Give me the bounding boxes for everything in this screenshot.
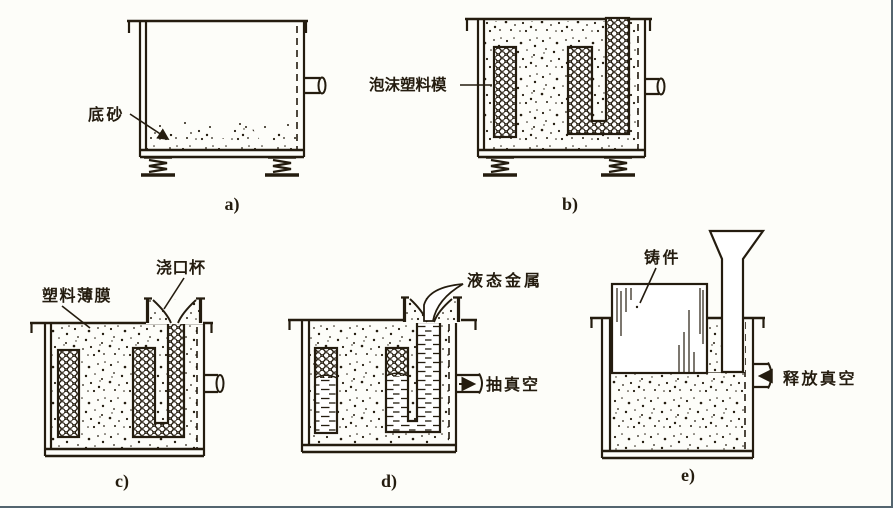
vibration-springs [483,158,635,176]
panel-a: 底砂 a) [88,21,326,215]
flask-rim-ticks [129,21,306,33]
flask-left-wall [602,318,610,458]
flask-left-wall [140,21,146,157]
sand-specks [159,122,289,128]
caption-a: a) [225,194,240,215]
foam-bar [494,47,516,137]
figure-canvas: 底砂 a) [0,0,893,508]
panel-d: 液态金属 抽真空 d) [288,271,543,492]
vacuum-pipe [204,375,224,392]
foam-bar [58,350,79,437]
flask-left-wall [302,320,309,452]
panel-b: 泡沫塑料模 b) [369,18,665,215]
mold-cavity-left [314,347,338,435]
spring-right [601,158,635,176]
spring-right [265,158,299,176]
label-plastic-film: 塑料薄膜 [42,286,112,305]
process-diagram: 底砂 a) [0,0,893,508]
caption-c: c) [115,471,129,492]
caption-b: b) [562,194,578,215]
plastic-film-leader [62,306,90,328]
bottom-sand-layer [147,123,296,150]
spring-left [141,158,175,176]
caption-d: d) [381,471,397,492]
flask-bottom [302,445,456,452]
label-foam-plastic-pattern: 泡沫塑料模 [369,75,447,94]
casting-block [612,284,707,373]
label-liquid-metal: 液态金属 [467,271,543,290]
flask-bottom [45,449,204,456]
flask-left-wall [478,19,484,157]
vacuum-pipe [645,79,665,95]
panel-c: 塑料薄膜 浇口杯 c) [30,258,224,492]
pouring-cup [144,297,205,324]
flask-bottom [478,150,645,157]
label-pouring-cup: 浇口杯 [156,258,206,277]
remaining-sand [610,372,745,451]
vacuum-pipe [304,78,326,94]
caption-e: e) [681,465,695,486]
vibration-springs [141,158,299,176]
label-casting: 铸件 [644,248,681,267]
label-pump-vacuum: 抽真空 [486,375,540,394]
flask-left-wall [45,323,51,456]
panel-e: 铸件 释放真空 e) [590,231,857,486]
label-bottom-sand: 底砂 [88,105,125,124]
flask-bottom [602,451,753,458]
label-release-vacuum: 释放真空 [783,369,857,388]
flask-bottom [140,150,304,157]
spring-left [483,158,517,176]
